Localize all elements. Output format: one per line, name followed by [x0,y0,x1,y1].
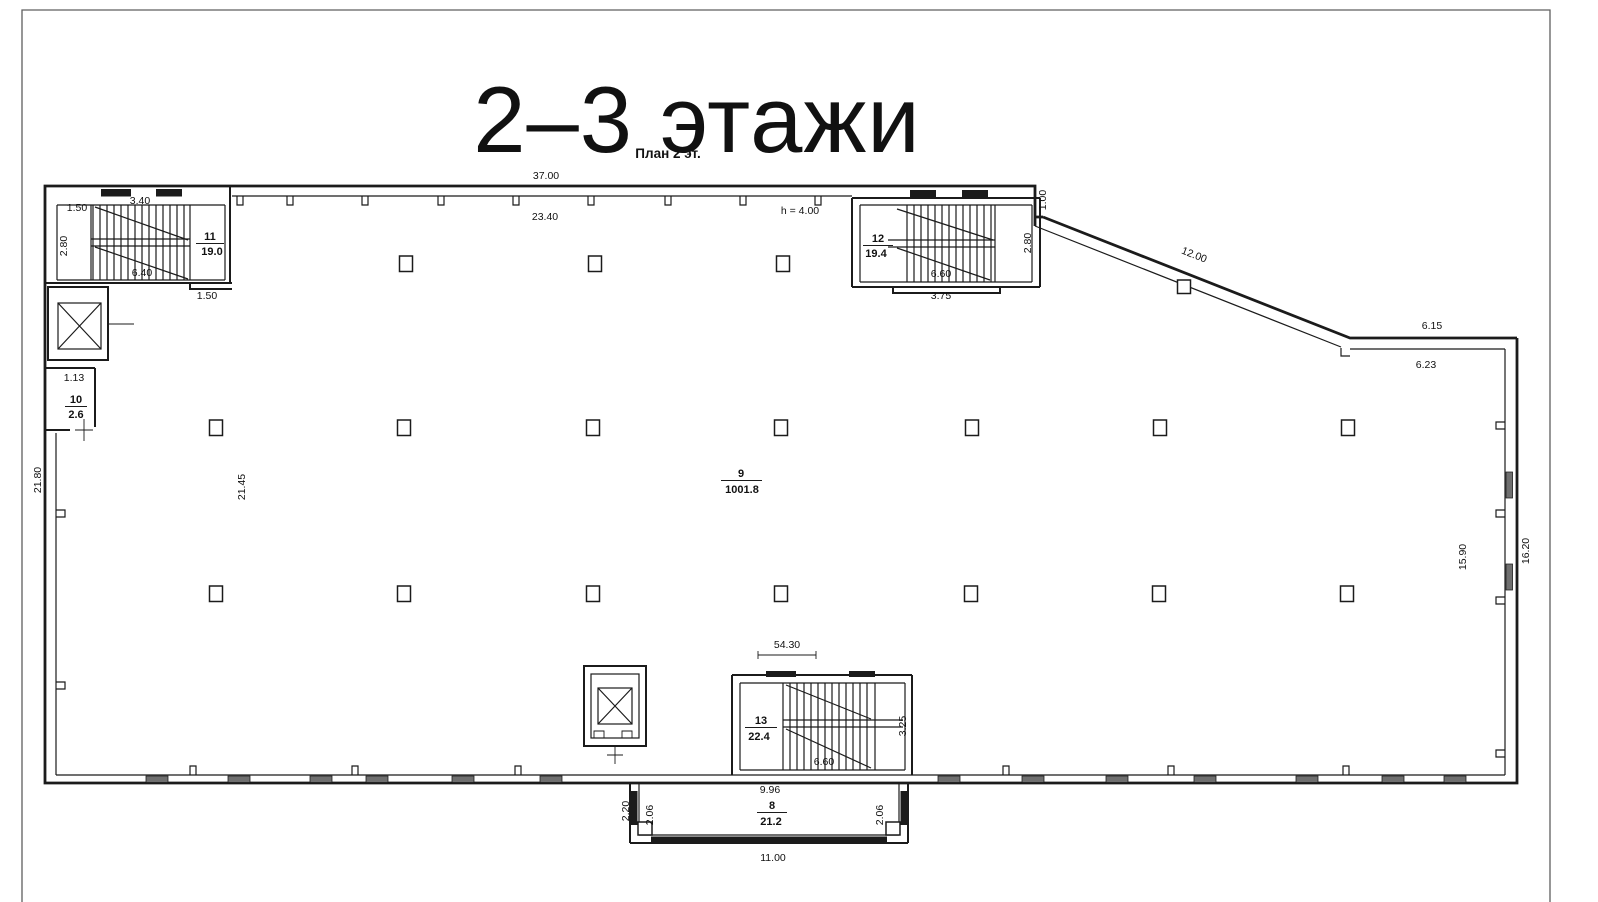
floor-plan-drawing: План 2 эт. 2–3 этажи [0,0,1598,902]
dim-height-note: h = 4.00 [781,205,819,217]
dim-s11-below: 1.50 [197,290,218,302]
elevator-bottom-center [584,666,646,764]
dim-porch-outer-left: 2.20 [620,801,632,822]
dim-s11-run: 6.40 [132,267,153,279]
floor-plan-page: План 2 эт. 2–3 этажи [0,0,1598,902]
right-wall-windows [1506,472,1513,590]
room-11-label: 11 19.0 [196,231,224,258]
dim-right-inner: 15.90 [1457,544,1469,570]
room-9-area: 1001.8 [725,484,759,496]
dim-s11-top: 3.40 [130,195,151,207]
room-13-label: 13 22.4 [745,715,777,743]
room-8-number: 8 [769,800,775,812]
dim-diagonal: 12.00 [1180,245,1209,266]
dim-s11-landing-h: 2.80 [58,236,70,257]
room-12-number: 12 [872,233,884,245]
elevator-x-icon [58,303,101,349]
room-10-label: 10 2.6 [65,394,87,421]
dim-r10-width: 1.13 [64,372,85,384]
dim-total-width: 54.30 [774,639,800,651]
room-11-area: 19.0 [201,246,222,258]
dim-left-inner: 21.45 [236,474,248,500]
elevator-top-left [48,287,134,360]
dim-hall-width: 23.40 [532,211,558,223]
dim-s12-run: 6.60 [931,268,952,280]
dim-s13-landing-h: 3.25 [897,716,909,737]
elevator2-x-icon [598,688,632,724]
room-8-area: 21.2 [760,816,781,828]
stair-13-landing-lines [783,720,903,727]
room-9-number: 9 [738,468,744,480]
room-13-number: 13 [755,715,767,727]
dim-step: 1.00 [1037,190,1049,211]
dim-porch-inner-left: 2.06 [644,805,656,826]
dim-ne-outer: 6.15 [1422,320,1443,332]
room-9-label: 9 1001.8 [721,468,762,496]
elevator2-axis-mark [607,746,623,764]
stair-12-top-wall-fills [910,190,988,198]
room-13-area: 22.4 [748,731,770,743]
stair-11-landing-lines [91,239,190,246]
dim-right-outer: 16.20 [1520,538,1532,564]
dim-porch-inner-right: 2.06 [874,805,886,826]
elevator2-feet [594,731,632,738]
dim-s11-landing-w: 1.50 [67,202,88,214]
dim-top-width: 37.00 [533,170,559,182]
building-outline-inner [56,196,1505,775]
dim-s12-landing-h: 2.80 [1022,233,1034,254]
right-wall-pilasters [1496,422,1505,757]
room-8-label: 8 21.2 [757,800,787,828]
room-12-area: 19.4 [865,248,887,260]
dim-s13-top: 9.96 [760,784,781,796]
building-outline-outer [45,186,1517,783]
top-wall-pilasters [237,196,821,205]
page-title: 2–3 этажи [473,67,921,172]
stair-12-treads [914,205,991,282]
dim-ne-inner: 6.23 [1416,359,1437,371]
dim-porch-width: 11.00 [760,852,786,864]
column-grid [210,256,1355,602]
dim-s13-run: 6.60 [814,756,835,768]
room-10-area: 2.6 [68,409,83,421]
bottom-wall-windows [146,776,1466,783]
dim-s12-width: 3.75 [931,290,952,302]
room-11-number: 11 [204,231,216,243]
total-width-dim-line [758,651,816,659]
room-10-door-cross [75,419,93,441]
left-wall-pilasters [56,510,65,689]
room-10-number: 10 [70,394,82,406]
dim-left-outer: 21.80 [32,467,44,493]
